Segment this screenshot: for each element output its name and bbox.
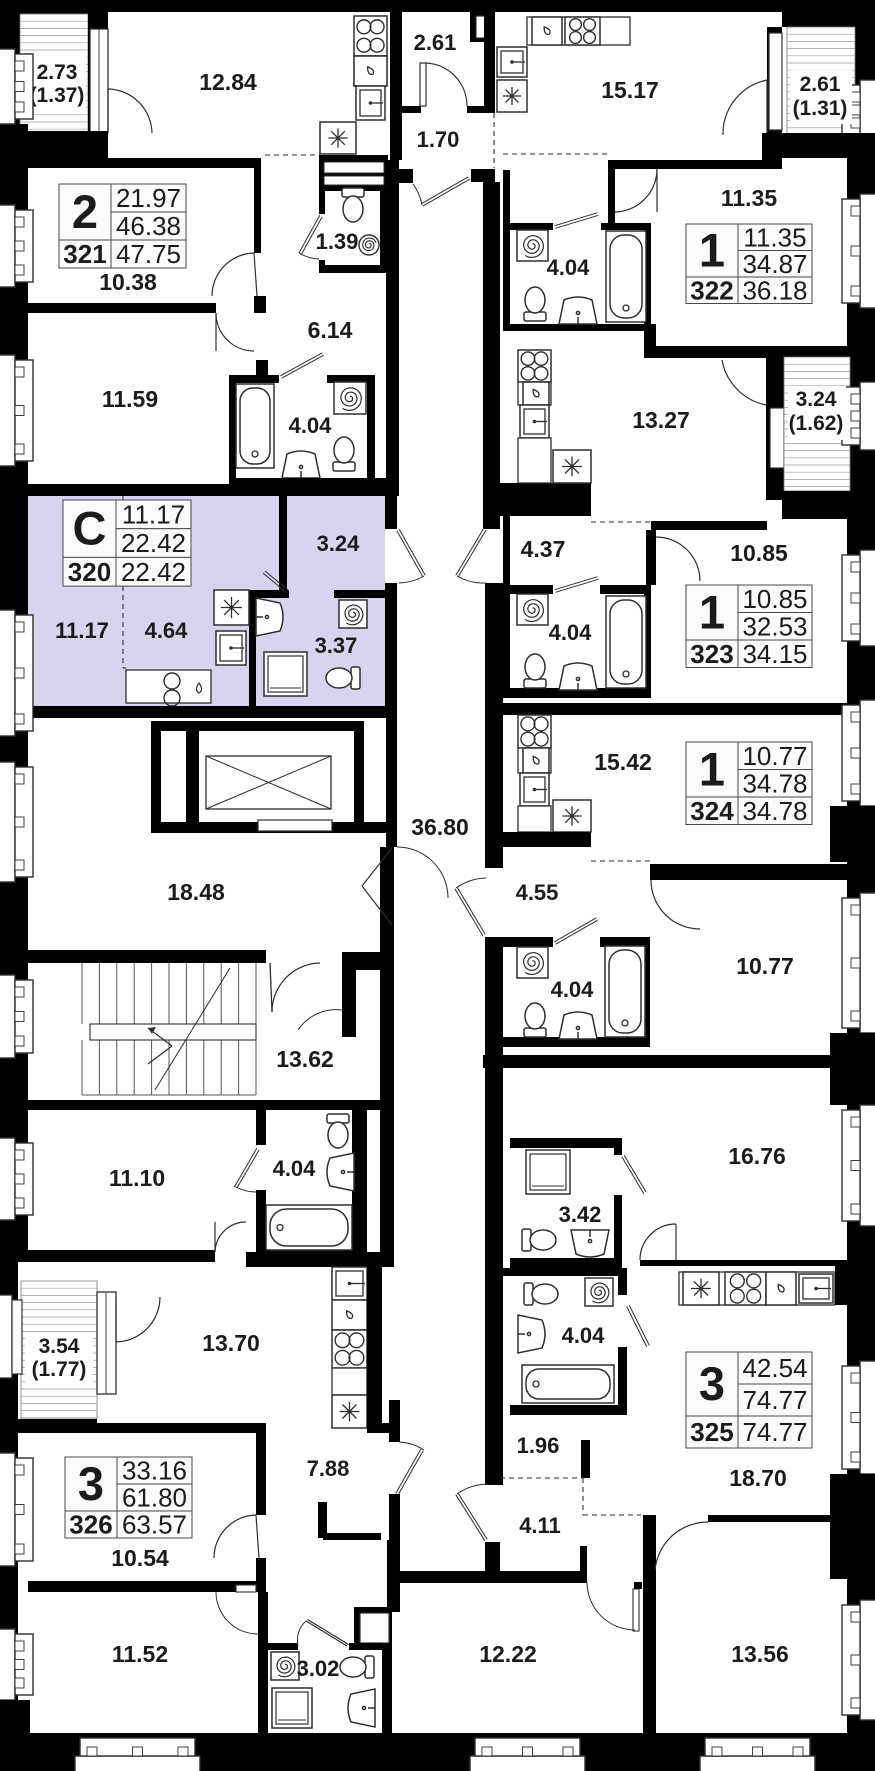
svg-text:325: 325 (690, 1417, 733, 1447)
svg-text:11.17: 11.17 (122, 499, 185, 529)
svg-text:36.80: 36.80 (411, 814, 469, 840)
svg-text:46.38: 46.38 (116, 211, 181, 241)
svg-text:18.48: 18.48 (167, 879, 225, 905)
svg-text:4.04: 4.04 (547, 255, 591, 280)
svg-text:11.52: 11.52 (112, 1641, 168, 1667)
svg-text:16.76: 16.76 (728, 1143, 786, 1169)
svg-text:4.04: 4.04 (289, 413, 333, 438)
svg-text:13.62: 13.62 (276, 1046, 334, 1072)
svg-text:(1.62): (1.62) (789, 412, 844, 435)
svg-text:6.14: 6.14 (308, 317, 353, 343)
svg-text:11.10: 11.10 (109, 1165, 165, 1191)
svg-text:2: 2 (72, 185, 98, 238)
svg-text:10.77: 10.77 (736, 953, 794, 979)
svg-text:47.75: 47.75 (116, 239, 181, 269)
svg-text:4.64: 4.64 (145, 618, 189, 643)
svg-text:4.04: 4.04 (549, 620, 593, 645)
svg-text:4.11: 4.11 (519, 1513, 561, 1538)
svg-text:13.70: 13.70 (202, 1330, 260, 1356)
svg-text:34.87: 34.87 (742, 249, 807, 279)
svg-text:63.57: 63.57 (122, 1510, 187, 1540)
svg-text:(1.77): (1.77) (32, 1358, 87, 1381)
svg-text:323: 323 (690, 639, 733, 669)
svg-text:15.17: 15.17 (601, 77, 659, 103)
svg-text:3: 3 (78, 1457, 104, 1510)
svg-text:10.38: 10.38 (99, 269, 157, 295)
svg-text:13.27: 13.27 (632, 407, 690, 433)
svg-text:С: С (73, 502, 107, 555)
svg-text:34.78: 34.78 (742, 768, 807, 798)
svg-text:7.88: 7.88 (307, 1456, 350, 1481)
svg-text:32.53: 32.53 (742, 611, 807, 641)
svg-text:1.70: 1.70 (417, 127, 460, 152)
svg-text:(1.37): (1.37) (30, 84, 85, 107)
svg-text:13.56: 13.56 (731, 1641, 789, 1667)
svg-text:33.16: 33.16 (122, 1456, 187, 1486)
svg-text:12.22: 12.22 (479, 1641, 537, 1667)
svg-text:3.02: 3.02 (297, 1656, 340, 1681)
svg-text:3.42: 3.42 (559, 1202, 602, 1227)
svg-text:11.35: 11.35 (743, 222, 806, 252)
svg-text:4.04: 4.04 (562, 1323, 606, 1348)
svg-text:3.54: 3.54 (39, 1335, 80, 1358)
svg-text:4.04: 4.04 (551, 977, 595, 1002)
svg-text:2.61: 2.61 (800, 73, 841, 96)
svg-text:4.37: 4.37 (521, 536, 566, 562)
svg-text:3: 3 (699, 1357, 725, 1410)
svg-text:1.39: 1.39 (316, 229, 359, 254)
svg-text:22.42: 22.42 (121, 528, 186, 558)
svg-text:21.97: 21.97 (116, 183, 181, 213)
svg-text:3.24: 3.24 (796, 388, 837, 411)
svg-text:321: 321 (63, 239, 106, 269)
svg-text:3.24: 3.24 (317, 531, 361, 556)
svg-text:12.84: 12.84 (199, 69, 257, 95)
svg-text:34.15: 34.15 (742, 639, 807, 669)
svg-text:(1.31): (1.31) (793, 97, 848, 120)
svg-text:1.96: 1.96 (517, 1433, 560, 1458)
svg-text:10.54: 10.54 (111, 1545, 169, 1571)
svg-text:18.70: 18.70 (729, 1465, 787, 1491)
svg-text:326: 326 (69, 1510, 112, 1540)
svg-text:10.77: 10.77 (742, 741, 807, 771)
svg-text:2.61: 2.61 (414, 30, 457, 55)
svg-text:1: 1 (699, 743, 725, 796)
svg-text:11.35: 11.35 (721, 185, 777, 211)
svg-text:10.85: 10.85 (730, 540, 788, 566)
svg-text:11.59: 11.59 (102, 386, 158, 412)
svg-text:15.42: 15.42 (594, 749, 652, 775)
svg-text:36.18: 36.18 (742, 275, 807, 305)
svg-text:74.77: 74.77 (742, 1417, 807, 1447)
svg-text:61.80: 61.80 (122, 1483, 187, 1513)
svg-text:324: 324 (690, 796, 734, 826)
svg-text:1: 1 (699, 586, 725, 639)
svg-text:320: 320 (68, 557, 111, 587)
svg-text:2.73: 2.73 (37, 61, 78, 84)
svg-text:322: 322 (690, 275, 733, 305)
svg-text:74.77: 74.77 (742, 1385, 807, 1415)
svg-text:22.42: 22.42 (121, 557, 186, 587)
svg-text:3.37: 3.37 (315, 633, 358, 658)
svg-text:4.04: 4.04 (273, 1156, 317, 1181)
svg-text:1: 1 (699, 224, 725, 277)
svg-text:4.55: 4.55 (516, 880, 559, 905)
svg-text:10.85: 10.85 (742, 584, 807, 614)
svg-text:11.17: 11.17 (55, 618, 109, 643)
svg-text:42.54: 42.54 (742, 1353, 807, 1383)
svg-text:34.78: 34.78 (742, 796, 807, 826)
